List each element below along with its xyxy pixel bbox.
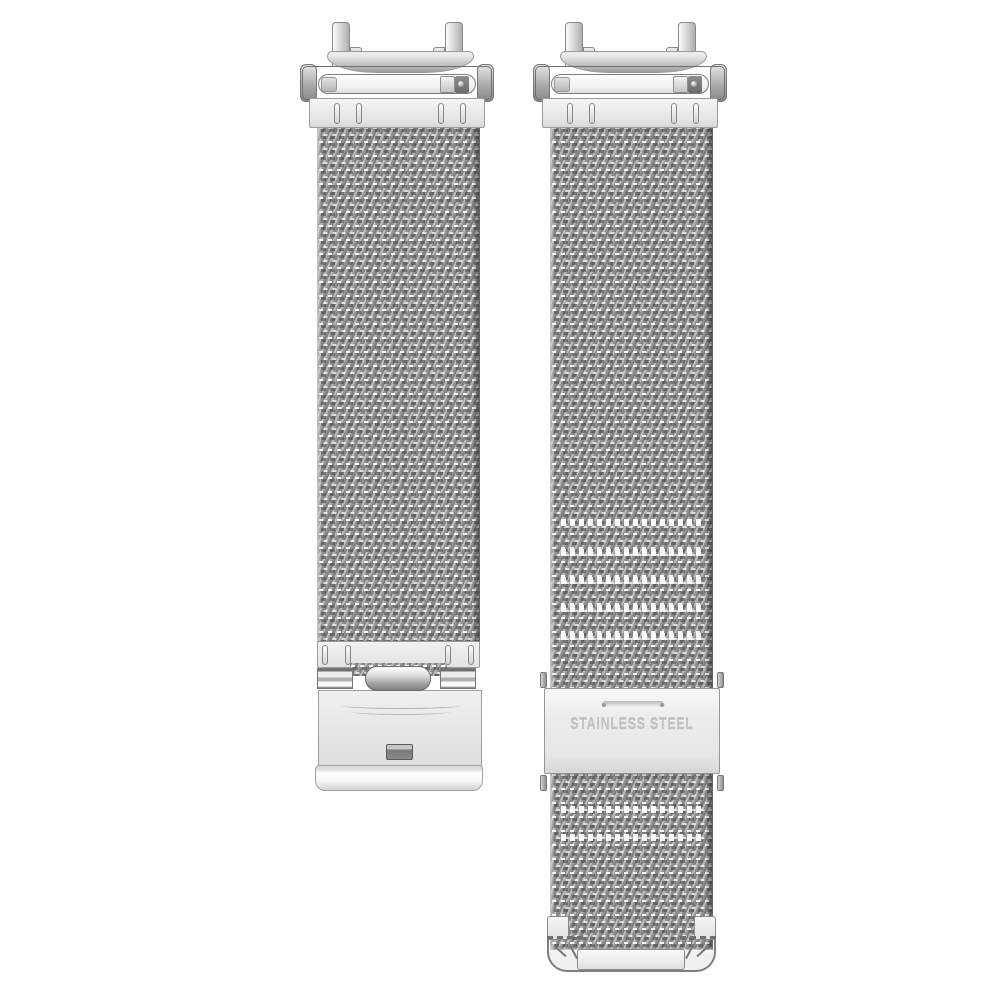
spring-bar-block	[321, 77, 337, 92]
buckle-cover	[318, 690, 482, 767]
plate-slot	[334, 103, 340, 124]
plate-slot	[567, 103, 573, 124]
plate-slot	[693, 103, 699, 124]
buckle-catch-button	[386, 744, 413, 760]
mesh-band-right-lower	[550, 772, 713, 950]
slide-clasp: STAINLESS STEEL	[544, 688, 720, 774]
hinge-bar	[440, 668, 476, 689]
clasp-rail-tab	[540, 775, 547, 791]
spring-bar-head	[455, 76, 469, 93]
plate-slot	[460, 103, 466, 124]
reflection-arc	[351, 708, 451, 715]
plate-slot	[589, 103, 595, 124]
hinge-barrel	[365, 666, 431, 691]
mesh-highlight-band	[561, 519, 702, 526]
spring-bar-collar	[440, 76, 455, 93]
engraving-text: STAINLESS STEEL	[561, 715, 704, 733]
plate-slot	[445, 645, 451, 665]
plate-slot	[468, 645, 474, 665]
lug-adapter-right	[535, 20, 725, 130]
plate-slot	[322, 645, 328, 665]
product-photo-stage: STAINLESS STEEL	[0, 0, 1000, 1000]
plate-slot	[438, 103, 444, 124]
spring-bar-block	[554, 77, 570, 92]
mesh-highlight-band	[561, 806, 702, 813]
mesh-highlight-band	[561, 633, 702, 640]
end-cap-bottom-bar	[577, 949, 685, 970]
plate-slot	[671, 103, 677, 124]
buckle-bottom-bar	[315, 765, 483, 791]
hinge-bar	[317, 668, 353, 689]
clasp-rail-tab	[717, 775, 724, 791]
spring-bar-head	[688, 76, 702, 93]
end-cap-seam	[547, 936, 583, 939]
mesh-highlight-band	[561, 605, 702, 612]
mesh-highlight-band	[561, 834, 702, 841]
spring-bar-collar	[673, 76, 688, 93]
connector-plate	[542, 98, 718, 128]
plate-slot	[345, 645, 351, 665]
mesh-highlight-band	[561, 577, 702, 584]
mesh-band-left	[317, 125, 480, 643]
connector-plate	[309, 98, 485, 128]
clasp-rail-tab	[717, 672, 724, 688]
fold-over-buckle	[317, 641, 483, 793]
spring-bar-channel	[551, 74, 709, 94]
plate-slot	[356, 103, 362, 124]
end-cap-seam	[680, 936, 716, 939]
lug-adapter-left	[302, 20, 492, 130]
mesh-band-right-upper	[550, 125, 713, 690]
clasp-rail-tab	[540, 672, 547, 688]
clasp-slot	[601, 701, 665, 710]
spring-bar-channel	[318, 74, 476, 94]
mesh-highlight-band	[561, 549, 702, 556]
